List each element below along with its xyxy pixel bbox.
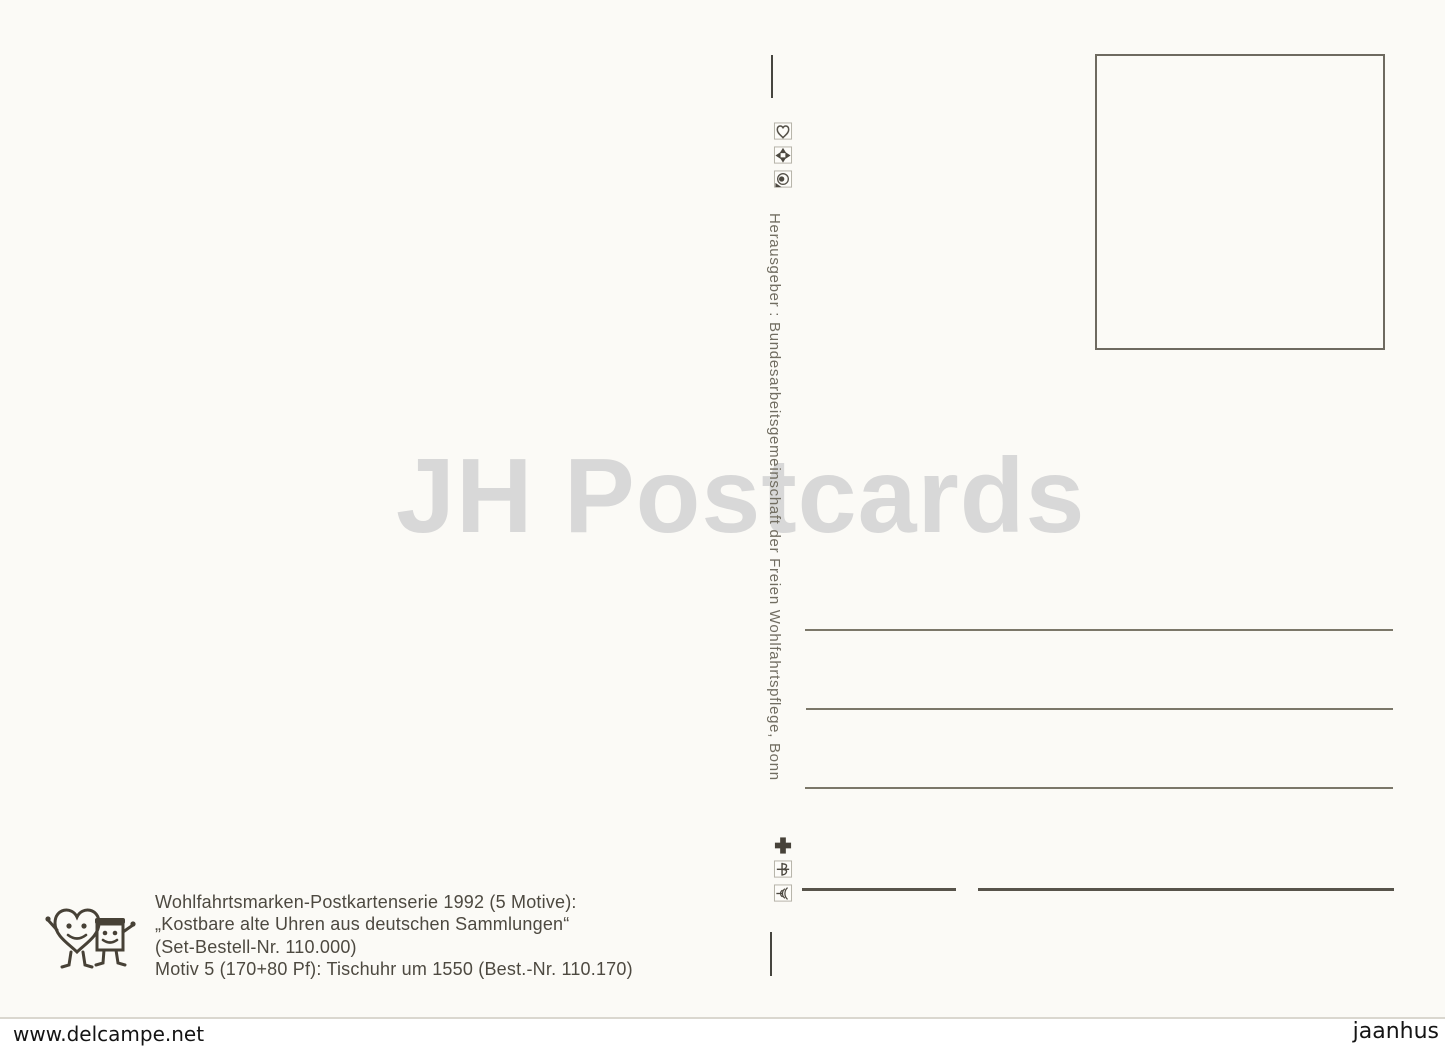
- divider-top-tick: [771, 55, 773, 98]
- charity-logos-top: [773, 122, 793, 194]
- menorah-charity-icon: [773, 884, 793, 903]
- stamp-box: [1095, 54, 1385, 350]
- postcard-back: JH Postcards Herausgeber : Bundesarbeits…: [0, 0, 1445, 1019]
- address-line: [805, 629, 1393, 631]
- imprint-series-line: Wohlfahrtsmarken-Postkartenserie 1992 (5…: [155, 891, 633, 913]
- address-line: [805, 787, 1393, 789]
- crown-cross-charity-icon: [773, 860, 793, 879]
- collector-watermark: JH Postcards: [396, 443, 1096, 549]
- address-line-segment: [802, 888, 956, 891]
- imprint-text-block: Wohlfahrtsmarken-Postkartenserie 1992 (5…: [155, 891, 633, 981]
- red-cross-charity-icon: [773, 836, 793, 855]
- publisher-vertical-text: Herausgeber : Bundesarbeitsgemeinschaft …: [764, 213, 783, 823]
- charity-logos-bottom: [773, 836, 793, 908]
- address-line-segment: [978, 888, 1394, 891]
- imprint-set-line: (Set-Bestell-Nr. 110.000): [155, 936, 633, 958]
- site-watermark-right: jaanhus: [1353, 1019, 1439, 1044]
- site-watermark-left: www.delcampe.net: [13, 1022, 204, 1046]
- eye-circle-charity-icon: [773, 170, 793, 189]
- welfare-stamps-mascots-logo: [44, 899, 136, 983]
- arrow-cross-charity-icon: [773, 146, 793, 165]
- divider-bottom-tick: [770, 932, 772, 976]
- address-line: [806, 708, 1393, 710]
- imprint-motif-line: Motiv 5 (170+80 Pf): Tischuhr um 1550 (B…: [155, 958, 633, 980]
- heart-charity-icon: [773, 122, 793, 141]
- imprint-title-line: „Kostbare alte Uhren aus deutschen Samml…: [155, 913, 633, 935]
